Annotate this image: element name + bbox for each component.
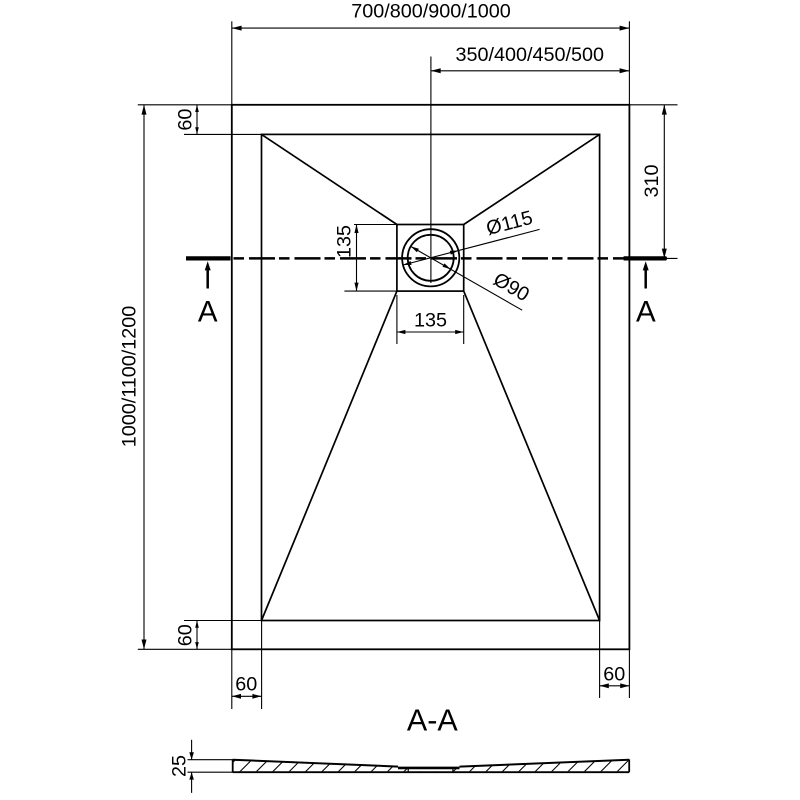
svg-text:A-A: A-A xyxy=(407,703,459,737)
svg-text:350/400/450/500: 350/400/450/500 xyxy=(455,44,604,66)
svg-text:60: 60 xyxy=(175,109,197,131)
svg-text:A: A xyxy=(636,296,656,329)
svg-text:1000/1100/1200: 1000/1100/1200 xyxy=(119,306,141,448)
svg-text:310: 310 xyxy=(641,164,663,197)
svg-text:25: 25 xyxy=(168,755,190,777)
svg-text:60: 60 xyxy=(603,664,625,686)
svg-text:Ø90: Ø90 xyxy=(489,268,532,306)
svg-text:60: 60 xyxy=(235,674,257,696)
svg-text:700/800/900/1000: 700/800/900/1000 xyxy=(351,0,511,22)
svg-text:135: 135 xyxy=(414,309,447,331)
svg-text:135: 135 xyxy=(334,225,356,258)
svg-text:A: A xyxy=(198,296,218,329)
svg-text:60: 60 xyxy=(175,624,197,646)
svg-text:Ø115: Ø115 xyxy=(484,207,535,240)
